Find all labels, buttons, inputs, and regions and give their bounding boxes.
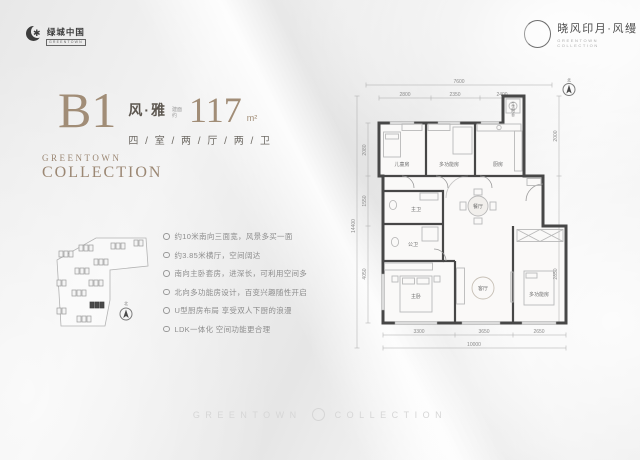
room-label-living: 客厅 xyxy=(478,285,488,292)
dim-bottom-total: 10000 xyxy=(467,342,481,348)
north-compass-icon: 北 xyxy=(120,300,132,320)
dim-left-1: 2080 xyxy=(362,144,368,155)
room-label-master: 主卧 xyxy=(411,293,421,300)
collection-wordmark: GREENTOWN COLLECTION xyxy=(42,153,162,182)
dim-right-1: 2000 xyxy=(553,130,559,141)
bullet-circle-icon xyxy=(163,326,170,333)
dim-top-1: 2800 xyxy=(399,92,410,98)
list-item: 南向主卧套房，进深长，可利用空间多 xyxy=(163,268,358,279)
north-label: 北 xyxy=(567,77,571,83)
area-unit: m² xyxy=(247,113,258,126)
brochure-page: ✱ 绿城中国 GREENTOWN 晓风印月·风缦 GREENTOWN COLLE… xyxy=(0,0,640,460)
dim-top-2: 2350 xyxy=(449,92,460,98)
unit-code: B1 xyxy=(58,86,116,134)
collection-line2: COLLECTION xyxy=(42,164,162,182)
dim-left-2: 1550 xyxy=(362,195,368,206)
bullet-circle-icon xyxy=(163,252,170,259)
feature-text: LDK一体化 空间功能更合理 xyxy=(175,324,271,335)
watermark-ring-icon xyxy=(312,408,325,421)
list-item: 北向多功能房设计，百变兴趣随性开启 xyxy=(163,287,358,298)
area-label: 建面约 xyxy=(172,107,184,126)
feature-text: 约3.85米横厅，空间阔达 xyxy=(175,250,261,261)
crescent-moon-icon: ✱ xyxy=(26,26,41,41)
feature-text: U型厨房布局 享受双人下厨的浪漫 xyxy=(175,305,292,316)
collection-line1: GREENTOWN xyxy=(42,153,162,163)
list-item: 约10米南向三面宽，风景多买一面 xyxy=(163,231,358,242)
bullet-circle-icon xyxy=(163,307,170,314)
unit-style-name: 风·雅 xyxy=(128,100,167,126)
room-label-children: 儿童房 xyxy=(394,161,409,168)
watermark-right: COLLECTION xyxy=(335,410,448,420)
list-item: U型厨房布局 享受双人下厨的浪漫 xyxy=(163,305,358,316)
feature-text: 南向主卧套房，进深长，可利用空间多 xyxy=(175,268,308,279)
dim-bottom-3: 2650 xyxy=(533,329,544,335)
room-label-multi-north: 多功能房 xyxy=(439,161,459,168)
unit-spec: 四 / 室 / 两 / 厅 / 两 / 卫 xyxy=(128,132,272,147)
list-item: 约3.85米横厅，空间阔达 xyxy=(163,250,358,261)
greentown-logo: ✱ 绿城中国 GREENTOWN xyxy=(26,26,86,46)
footer-watermark: GREENTOWN COLLECTION xyxy=(0,408,640,421)
room-label-dining: 餐厅 xyxy=(473,203,483,210)
bullet-circle-icon xyxy=(163,233,170,240)
room-label-kitchen: 厨房 xyxy=(493,161,503,168)
circle-logo-icon xyxy=(524,20,551,48)
brand-name: 绿城中国 xyxy=(47,26,85,38)
brand-sub: GREENTOWN xyxy=(46,39,86,46)
dim-left-total: 14400 xyxy=(351,219,357,233)
dim-top-total: 7600 xyxy=(453,79,464,85)
room-label-multi-south: 多功能房 xyxy=(529,291,549,298)
site-plan: 北 xyxy=(44,226,156,338)
highlighted-building xyxy=(90,302,104,308)
north-label: 北 xyxy=(124,300,128,306)
project-logo: 晓风印月·风缦 GREENTOWN COLLECTION xyxy=(524,20,640,48)
feature-list: 约10米南向三面宽，风景多买一面 约3.85米横厅，空间阔达 南向主卧套房，进深… xyxy=(163,231,358,342)
room-label-guest-bath: 公卫 xyxy=(408,242,418,248)
feature-text: 北向多功能房设计，百变兴趣随性开启 xyxy=(175,287,308,298)
dim-bottom-2: 3650 xyxy=(478,329,489,335)
project-name: 晓风印月·风缦 xyxy=(557,20,640,36)
unit-title-block: B1 风·雅 建面约 117 m² 四 / 室 / 两 / 厅 / 两 / 卫 xyxy=(58,86,272,147)
room-label-balcony: 生活阳台 xyxy=(510,101,515,117)
bullet-circle-icon xyxy=(163,289,170,296)
project-sub: GREENTOWN COLLECTION xyxy=(557,38,640,48)
room-label-master-bath: 主卫 xyxy=(411,206,421,213)
list-item: LDK一体化 空间功能更合理 xyxy=(163,324,358,335)
dim-bottom-1: 3300 xyxy=(413,329,424,335)
north-compass-icon: 北 xyxy=(563,77,575,96)
floor-plan: 7600 2800 2350 2400 14400 2080 1550 4050… xyxy=(350,76,580,366)
bullet-circle-icon xyxy=(163,270,170,277)
area-value: 117 xyxy=(189,94,242,126)
watermark-left: GREENTOWN xyxy=(193,410,302,420)
dim-left-3: 4050 xyxy=(362,268,368,279)
feature-text: 约10米南向三面宽，风景多买一面 xyxy=(175,231,293,242)
